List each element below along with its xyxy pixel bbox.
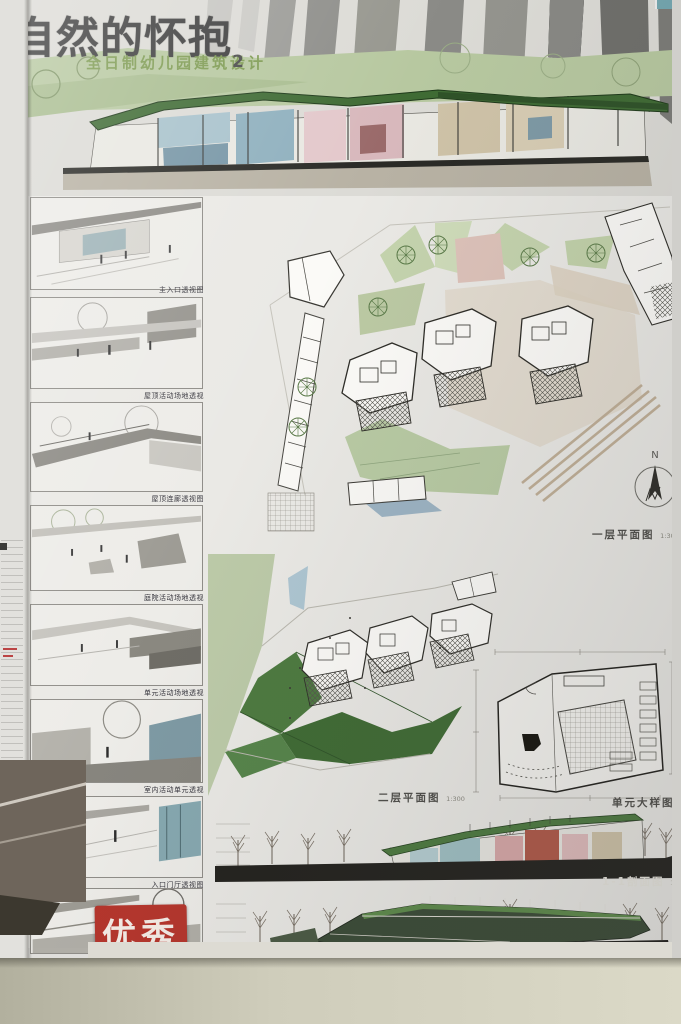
thumbnail-caption: 室内活动单元透视 [84, 785, 204, 795]
thumbnail-caption: 主入口透视图 [84, 285, 204, 295]
adjacent-poster-red-text [3, 648, 17, 650]
poster-subtitle-number: 2 [232, 52, 244, 72]
adjacent-poster-red-text [3, 655, 13, 657]
thumbnail-caption: 屋顶活动场地透视 [84, 391, 204, 401]
photo-of-poster: 自然的怀抱 全日制幼儿园建筑设计 2 主入口透视图 屋顶活动场地透视 [0, 0, 681, 1024]
thumbnail-unit-playground [30, 604, 203, 686]
second-floor-plan-drawing [200, 548, 500, 800]
first-floor-plan-caption: 一层平面图 1:300 [592, 527, 679, 542]
thumbnail-main-entrance [30, 197, 203, 290]
second-floor-plan-caption: 二层平面图 1:300 [378, 790, 465, 805]
thumbnail-roof-playground [30, 297, 203, 389]
compass-north-label: N [651, 450, 658, 461]
adjacent-poster-image-fragment [0, 760, 86, 902]
north-arrow-icon [635, 465, 675, 507]
unit-detail-plan-drawing [460, 642, 680, 804]
adjacent-poster-text-lines [1, 540, 23, 760]
background-wall [672, 0, 681, 1024]
thumbnail-roof-bridge [30, 402, 203, 492]
floor-shadow [0, 958, 681, 968]
adjacent-poster-bullet [0, 543, 7, 550]
thumbnail-caption: 庭院活动场地透视 [84, 593, 204, 603]
thumbnail-caption: 屋顶连廊透视图 [84, 494, 204, 504]
thumbnail-caption: 单元活动场地透视 [84, 688, 204, 698]
thumbnail-courtyard-playground [30, 505, 203, 591]
first-floor-plan-drawing: N [210, 195, 680, 545]
